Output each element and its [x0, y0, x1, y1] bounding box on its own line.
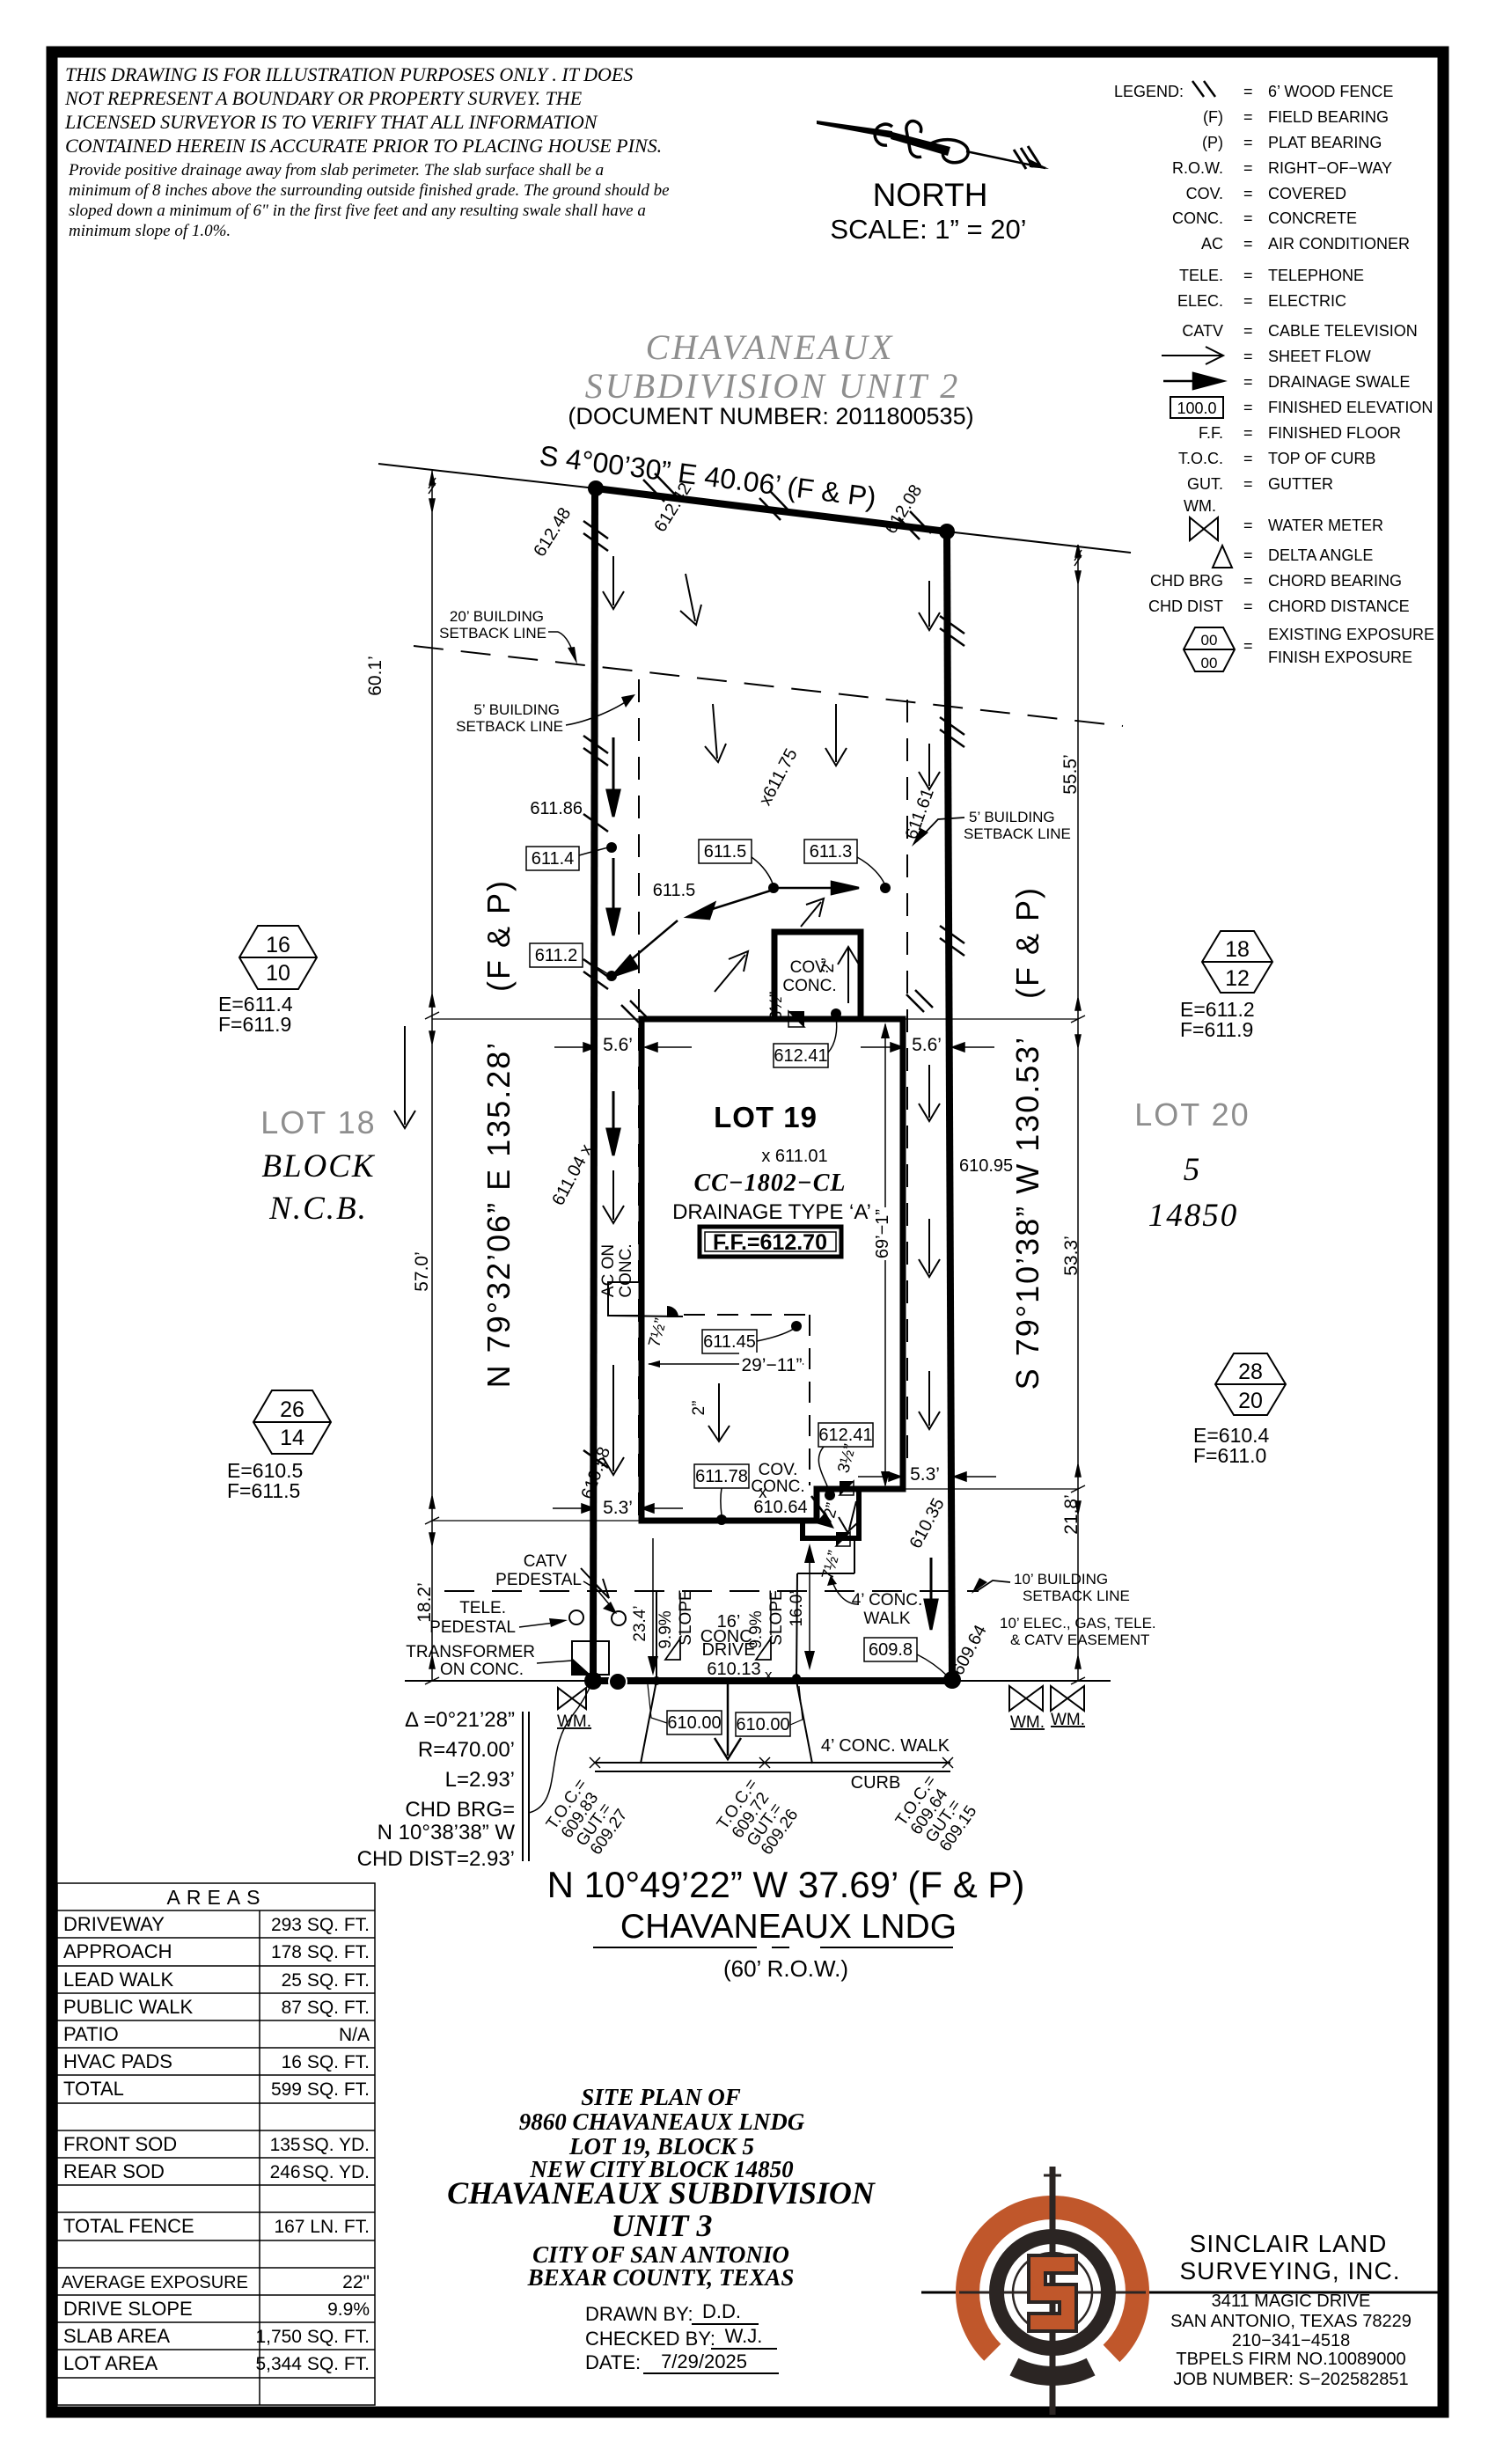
svg-text:135 SQ. YD.: 135 SQ. YD.	[270, 2135, 370, 2155]
svg-text:CONC.: CONC.	[782, 977, 836, 995]
svg-text:SETBACK LINE: SETBACK LINE	[964, 825, 1071, 842]
svg-text:SITE PLAN OF: SITE PLAN OF	[581, 2084, 741, 2110]
svg-text:F=611.9: F=611.9	[1180, 1018, 1253, 1041]
svg-text:SINCLAIR LAND: SINCLAIR LAND	[1190, 2230, 1388, 2257]
svg-text:5.6’: 5.6’	[912, 1035, 942, 1055]
svg-text:611.2: 611.2	[535, 946, 578, 965]
svg-text:=: =	[1243, 517, 1253, 534]
svg-text:=: =	[1243, 424, 1253, 442]
svg-text:DRAWN BY:: DRAWN BY:	[585, 2303, 693, 2325]
svg-text:HVAC PADS: HVAC PADS	[63, 2050, 172, 2072]
svg-text:=: =	[1243, 373, 1253, 391]
svg-text:CHAVANEAUX LNDG: CHAVANEAUX LNDG	[620, 1908, 957, 1946]
svg-text:CC−1802−CL: CC−1802−CL	[693, 1170, 846, 1197]
svg-text:=: =	[1243, 322, 1253, 340]
svg-text:10’ BUILDING: 10’ BUILDING	[1014, 1571, 1108, 1588]
svg-text:CABLE TELEVISION: CABLE TELEVISION	[1268, 322, 1418, 340]
svg-text:DATE:: DATE:	[585, 2351, 641, 2373]
svg-text:60.1’: 60.1’	[365, 656, 385, 696]
svg-text:F=611.5: F=611.5	[227, 1479, 300, 1502]
svg-text:F=611.9: F=611.9	[218, 1013, 291, 1036]
svg-text:WM.: WM.	[557, 1712, 591, 1731]
svg-text:SCALE: 1” = 20’: SCALE: 1” = 20’	[830, 214, 1026, 245]
svg-text:3411 MAGIC DRIVE: 3411 MAGIC DRIVE	[1212, 2292, 1371, 2311]
svg-text:55.5’: 55.5’	[1060, 754, 1081, 795]
svg-text:AVERAGE EXPOSURE: AVERAGE EXPOSURE	[62, 2273, 248, 2292]
svg-text:611.5: 611.5	[704, 842, 747, 862]
svg-text:GUTTER: GUTTER	[1268, 475, 1333, 493]
svg-text:APPROACH: APPROACH	[63, 1940, 172, 1962]
svg-text:SAN ANTONIO, TEXAS 78229: SAN ANTONIO, TEXAS 78229	[1170, 2312, 1412, 2331]
svg-text:611.45: 611.45	[703, 1332, 756, 1352]
svg-text:1,750 SQ. FT.: 1,750 SQ. FT.	[255, 2327, 370, 2347]
svg-text:10: 10	[266, 961, 290, 986]
svg-text:18.2’: 18.2’	[414, 1582, 435, 1623]
svg-text:26: 26	[280, 1397, 304, 1422]
svg-text:FINISHED FLOOR: FINISHED FLOOR	[1268, 424, 1401, 442]
svg-text:TOP OF CURB: TOP OF CURB	[1268, 450, 1375, 467]
svg-text:SHEET FLOW: SHEET FLOW	[1268, 348, 1371, 365]
svg-text:=: =	[1243, 292, 1253, 310]
svg-text:SLOPE: SLOPE	[677, 1589, 695, 1645]
svg-text:TELEPHONE: TELEPHONE	[1268, 267, 1364, 284]
svg-text:23.4’: 23.4’	[631, 1605, 649, 1641]
svg-text:00: 00	[1201, 632, 1218, 649]
svg-text:5.6’: 5.6’	[603, 1035, 633, 1055]
svg-text:28: 28	[1238, 1360, 1263, 1384]
svg-text:LICENSED SURVEYOR IS TO VERIFY: LICENSED SURVEYOR IS TO VERIFY THAT ALL …	[64, 111, 598, 133]
svg-text:DRIVEWAY: DRIVEWAY	[63, 1913, 165, 1935]
svg-text:4’ CONC.: 4’ CONC.	[852, 1591, 923, 1610]
svg-text:TRANSFORMER: TRANSFORMER	[406, 1643, 535, 1661]
svg-text:6’ WOOD FENCE: 6’ WOOD FENCE	[1268, 83, 1393, 100]
svg-text:611.4: 611.4	[532, 849, 575, 869]
svg-text:9860 CHAVANEAUX LNDG: 9860 CHAVANEAUX LNDG	[519, 2108, 805, 2135]
svg-text:N/A: N/A	[339, 2025, 370, 2045]
svg-text:29’−11”: 29’−11”	[741, 1355, 802, 1375]
svg-text:12: 12	[1225, 966, 1250, 991]
svg-text:25 SQ. FT.: 25 SQ. FT.	[282, 1970, 370, 1991]
svg-text:WATER METER: WATER METER	[1268, 517, 1383, 534]
svg-text:612.41: 612.41	[774, 1046, 827, 1066]
svg-text:2”: 2”	[819, 958, 838, 973]
svg-text:TELE.: TELE.	[1179, 267, 1223, 284]
svg-text:AC ON: AC ON	[599, 1244, 618, 1297]
svg-text:=: =	[1243, 134, 1253, 151]
svg-text:JOB NUMBER: S−202582851: JOB NUMBER: S−202582851	[1173, 2370, 1408, 2389]
svg-text:minimum of 8 inches above the: minimum of 8 inches above the surroundin…	[69, 181, 670, 200]
svg-text:246 SQ. YD.: 246 SQ. YD.	[270, 2162, 370, 2182]
svg-text:L=2.93’: L=2.93’	[445, 1768, 515, 1792]
svg-text:611.86: 611.86	[530, 799, 583, 818]
svg-text:(F & P): (F & P)	[1009, 886, 1045, 999]
svg-text:(F & P): (F & P)	[480, 879, 517, 992]
svg-text:T.O.C.: T.O.C.	[1178, 450, 1223, 467]
svg-text:FINISHED ELEVATION: FINISHED ELEVATION	[1268, 399, 1433, 416]
svg-text:THIS DRAWING IS FOR ILLUSTRATI: THIS DRAWING IS FOR ILLUSTRATION PURPOSE…	[65, 63, 633, 85]
svg-text:WM.: WM.	[1010, 1713, 1045, 1732]
svg-text:3½”: 3½”	[767, 992, 786, 1021]
svg-text:21.8’: 21.8’	[1061, 1494, 1082, 1535]
svg-text:PEDESTAL: PEDESTAL	[495, 1571, 582, 1589]
svg-text:CATV: CATV	[524, 1552, 568, 1571]
svg-text:Δ =0°21’28”: Δ =0°21’28”	[405, 1708, 515, 1732]
svg-text:609.8: 609.8	[869, 1640, 913, 1660]
svg-text:REAR SOD: REAR SOD	[63, 2160, 165, 2182]
svg-text:2”: 2”	[690, 1401, 708, 1416]
svg-text:69’−1”: 69’−1”	[873, 1209, 892, 1258]
svg-text:COV.: COV.	[1186, 185, 1223, 202]
svg-text:FRONT SOD: FRONT SOD	[63, 2133, 177, 2155]
svg-text:5.3’: 5.3’	[603, 1498, 633, 1518]
svg-text:610.95: 610.95	[959, 1156, 1013, 1176]
svg-text:SETBACK LINE: SETBACK LINE	[1023, 1588, 1130, 1604]
svg-text:4’ CONC. WALK: 4’ CONC. WALK	[821, 1736, 950, 1756]
svg-text:178 SQ. FT.: 178 SQ. FT.	[271, 1942, 370, 1962]
svg-text:611.78: 611.78	[695, 1467, 748, 1486]
svg-text:PUBLIC WALK: PUBLIC WALK	[63, 1996, 193, 2018]
svg-text:LOT AREA: LOT AREA	[63, 2352, 158, 2374]
svg-text:LOT 18: LOT 18	[260, 1104, 376, 1140]
svg-text:DRAINAGE SWALE: DRAINAGE SWALE	[1268, 373, 1410, 391]
svg-text:18: 18	[1225, 937, 1250, 962]
svg-text:=: =	[1243, 450, 1253, 467]
svg-text:DRIVE: DRIVE	[701, 1640, 755, 1660]
svg-text:611.3: 611.3	[810, 842, 853, 862]
svg-text:9.9%: 9.9%	[656, 1610, 675, 1648]
svg-text:=: =	[1243, 267, 1253, 284]
svg-text:CONCRETE: CONCRETE	[1268, 209, 1357, 227]
svg-text:CONC.: CONC.	[617, 1243, 635, 1297]
svg-text:PEDESTAL: PEDESTAL	[429, 1618, 516, 1637]
svg-text:SETBACK LINE: SETBACK LINE	[439, 625, 546, 642]
svg-text:5.3’: 5.3’	[910, 1464, 940, 1485]
svg-text:5’ BUILDING: 5’ BUILDING	[473, 701, 560, 718]
svg-text:LOT 19: LOT 19	[714, 1101, 818, 1133]
svg-text:CHECKED BY:: CHECKED BY:	[585, 2328, 715, 2350]
svg-text:N 79°32’06” E 135.28’: N 79°32’06” E 135.28’	[480, 1041, 517, 1389]
svg-text:GUT.: GUT.	[1187, 475, 1223, 493]
svg-text:53.3’: 53.3’	[1061, 1236, 1082, 1276]
svg-text:FINISH EXPOSURE: FINISH EXPOSURE	[1268, 649, 1412, 666]
svg-text:=: =	[1243, 185, 1253, 202]
svg-text:F=611.0: F=611.0	[1193, 1444, 1266, 1467]
svg-text:WALK: WALK	[863, 1610, 910, 1628]
svg-text:SLAB AREA: SLAB AREA	[63, 2325, 170, 2347]
svg-text:CHD BRG=: CHD BRG=	[405, 1798, 515, 1822]
svg-text:610.13: 610.13	[707, 1660, 760, 1679]
svg-text:S 79°10’38” W 130.53’: S 79°10’38” W 130.53’	[1009, 1036, 1045, 1390]
svg-text:CHD DIST=2.93’: CHD DIST=2.93’	[357, 1847, 515, 1871]
svg-text:F.F.=612.70: F.F.=612.70	[713, 1230, 827, 1255]
svg-text:=: =	[1243, 159, 1253, 177]
svg-text:R.O.W.: R.O.W.	[1172, 159, 1223, 177]
svg-text:COV.: COV.	[759, 1461, 798, 1479]
svg-text:PLAT BEARING: PLAT BEARING	[1268, 134, 1382, 151]
svg-text:& CATV EASEMENT: & CATV EASEMENT	[1010, 1632, 1149, 1648]
svg-text:NORTH: NORTH	[873, 177, 988, 213]
svg-text:(F): (F)	[1203, 108, 1223, 126]
svg-text:293 SQ. FT.: 293 SQ. FT.	[271, 1915, 370, 1935]
svg-text:CHAVANEAUX: CHAVANEAUX	[646, 327, 895, 367]
svg-text:14: 14	[280, 1426, 304, 1450]
svg-text:610.00: 610.00	[667, 1713, 721, 1733]
svg-text:SETBACK LINE: SETBACK LINE	[456, 718, 563, 735]
svg-text:00: 00	[1201, 655, 1218, 671]
svg-text:DRAINAGE TYPE ‘A’: DRAINAGE TYPE ‘A’	[672, 1200, 871, 1224]
svg-text:DELTA ANGLE: DELTA ANGLE	[1268, 546, 1373, 564]
svg-text:PATIO: PATIO	[63, 2023, 119, 2045]
svg-text:Provide positive drainage away: Provide positive drainage away from slab…	[68, 161, 604, 180]
svg-text:minimum slope of 1.0%.: minimum slope of 1.0%.	[69, 222, 231, 240]
svg-text:TELE.: TELE.	[459, 1599, 506, 1617]
svg-text:CONC.: CONC.	[1172, 209, 1223, 227]
svg-text:COVERED: COVERED	[1268, 185, 1346, 202]
svg-text:EXISTING EXPOSURE: EXISTING EXPOSURE	[1268, 626, 1434, 643]
svg-text:=: =	[1243, 348, 1253, 365]
svg-text:CONTAINED HEREIN IS ACCURATE P: CONTAINED HEREIN IS ACCURATE PRIOR TO PL…	[65, 135, 662, 157]
svg-text:612.41: 612.41	[818, 1426, 872, 1445]
svg-text:=: =	[1243, 598, 1253, 615]
svg-text:599 SQ. FT.: 599 SQ. FT.	[271, 2079, 370, 2100]
svg-text:20: 20	[1238, 1389, 1263, 1413]
svg-text:=: =	[1243, 209, 1253, 227]
svg-text:16: 16	[266, 933, 290, 957]
svg-text:x 611.01: x 611.01	[761, 1147, 827, 1166]
svg-text:sloped down a minimum of 6" in: sloped down a minimum of 6" in the first…	[69, 202, 646, 220]
svg-text:ON CONC.: ON CONC.	[440, 1661, 524, 1679]
svg-text:TBPELS FIRM NO.10089000: TBPELS FIRM NO.10089000	[1176, 2350, 1405, 2369]
svg-text:610.64: 610.64	[753, 1498, 807, 1517]
svg-text:=: =	[1243, 572, 1253, 590]
svg-text:UNIT 3: UNIT 3	[612, 2208, 713, 2243]
svg-text:BLOCK: BLOCK	[261, 1148, 376, 1184]
svg-text:N 10°49’22” W 37.69’ (F &: N 10°49’22” W 37.69’ (F & P)	[547, 1864, 1025, 1905]
svg-text:5,344 SQ. FT.: 5,344 SQ. FT.	[255, 2354, 370, 2374]
svg-text:14850: 14850	[1148, 1198, 1239, 1234]
svg-text:NOT REPRESENT A BOUNDARY OR PR: NOT REPRESENT A BOUNDARY OR PROPERTY SUR…	[64, 87, 583, 109]
svg-text:SUBDIVISION UNIT 2: SUBDIVISION UNIT 2	[585, 366, 961, 406]
svg-text:=: =	[1243, 235, 1253, 253]
svg-text:CHAVANEAUX SUBDIVISION: CHAVANEAUX SUBDIVISION	[447, 2175, 876, 2211]
svg-text:RIGHT−OF−WAY: RIGHT−OF−WAY	[1268, 159, 1392, 177]
svg-text:=: =	[1243, 108, 1253, 126]
svg-text:CHORD BEARING: CHORD BEARING	[1268, 572, 1402, 590]
svg-text:ELECTRIC: ELECTRIC	[1268, 292, 1346, 310]
svg-text:R=470.00’: R=470.00’	[418, 1738, 515, 1762]
svg-text:AREAS: AREAS	[167, 1886, 267, 1909]
svg-text:(DOCUMENT NUMBER: 2011800535): (DOCUMENT NUMBER: 2011800535)	[568, 403, 973, 429]
svg-text:5: 5	[1184, 1152, 1200, 1188]
svg-text:DRIVE SLOPE: DRIVE SLOPE	[63, 2298, 193, 2320]
svg-text:CHD BRG: CHD BRG	[1150, 572, 1223, 590]
svg-text:FIELD BEARING: FIELD BEARING	[1268, 108, 1389, 126]
svg-text:WM.: WM.	[1051, 1711, 1085, 1729]
svg-text:D.D.: D.D.	[702, 2300, 741, 2322]
svg-text:TOTAL: TOTAL	[63, 2078, 124, 2100]
svg-text:611.5: 611.5	[653, 881, 696, 900]
svg-text:CHD DIST: CHD DIST	[1148, 598, 1223, 615]
svg-text:16 SQ. FT.: 16 SQ. FT.	[282, 2052, 370, 2072]
svg-text:=: =	[1243, 83, 1253, 100]
svg-text:100.0: 100.0	[1177, 400, 1216, 417]
svg-text:TOTAL FENCE: TOTAL FENCE	[63, 2215, 194, 2237]
svg-text:=: =	[1243, 475, 1253, 493]
svg-text:N 10°38’38” W: N 10°38’38” W	[378, 1821, 516, 1844]
svg-text:LEAD WALK: LEAD WALK	[63, 1969, 173, 1991]
svg-text:16.0’: 16.0’	[788, 1590, 806, 1626]
svg-text:CHORD DISTANCE: CHORD DISTANCE	[1268, 598, 1410, 615]
svg-text:5’ BUILDING: 5’ BUILDING	[969, 809, 1055, 825]
svg-text:LOT 20: LOT 20	[1134, 1096, 1250, 1133]
svg-text:(P): (P)	[1202, 134, 1223, 151]
svg-text:x: x	[765, 1667, 773, 1683]
svg-text:N.C.B.: N.C.B.	[268, 1191, 368, 1227]
svg-text:AC: AC	[1201, 235, 1223, 253]
svg-text:22": 22"	[342, 2272, 370, 2292]
svg-text:AIR CONDITIONER: AIR CONDITIONER	[1268, 235, 1410, 253]
svg-text:W.J.: W.J.	[725, 2325, 763, 2347]
svg-text:=: =	[1243, 546, 1253, 564]
svg-text:7/29/2025: 7/29/2025	[661, 2350, 747, 2372]
svg-text:9.9%: 9.9%	[327, 2299, 370, 2320]
svg-text:WM.: WM.	[1184, 497, 1216, 515]
svg-text:BEXAR COUNTY, TEXAS: BEXAR COUNTY, TEXAS	[527, 2264, 795, 2291]
svg-text:(60’ R.O.W.): (60’ R.O.W.)	[723, 1955, 848, 1982]
svg-text:LEGEND:: LEGEND:	[1114, 83, 1184, 100]
svg-text:SURVEYING, INC.: SURVEYING, INC.	[1180, 2257, 1401, 2284]
svg-text:SLOPE: SLOPE	[767, 1589, 786, 1645]
svg-text:ELEC.: ELEC.	[1177, 292, 1223, 310]
svg-text:F.F.: F.F.	[1199, 424, 1223, 442]
svg-text:CURB: CURB	[851, 1773, 901, 1793]
svg-text:=: =	[1243, 399, 1253, 416]
svg-text:57.0’: 57.0’	[412, 1251, 432, 1292]
svg-text:20’ BUILDING: 20’ BUILDING	[450, 608, 544, 625]
svg-text:=: =	[1243, 637, 1253, 655]
svg-text:167 LN. FT.: 167 LN. FT.	[274, 2217, 370, 2237]
svg-text:610.00: 610.00	[736, 1715, 789, 1734]
svg-text:210−341−4518: 210−341−4518	[1232, 2331, 1351, 2350]
svg-text:87 SQ. FT.: 87 SQ. FT.	[282, 1998, 370, 2018]
svg-text:CATV: CATV	[1182, 322, 1223, 340]
